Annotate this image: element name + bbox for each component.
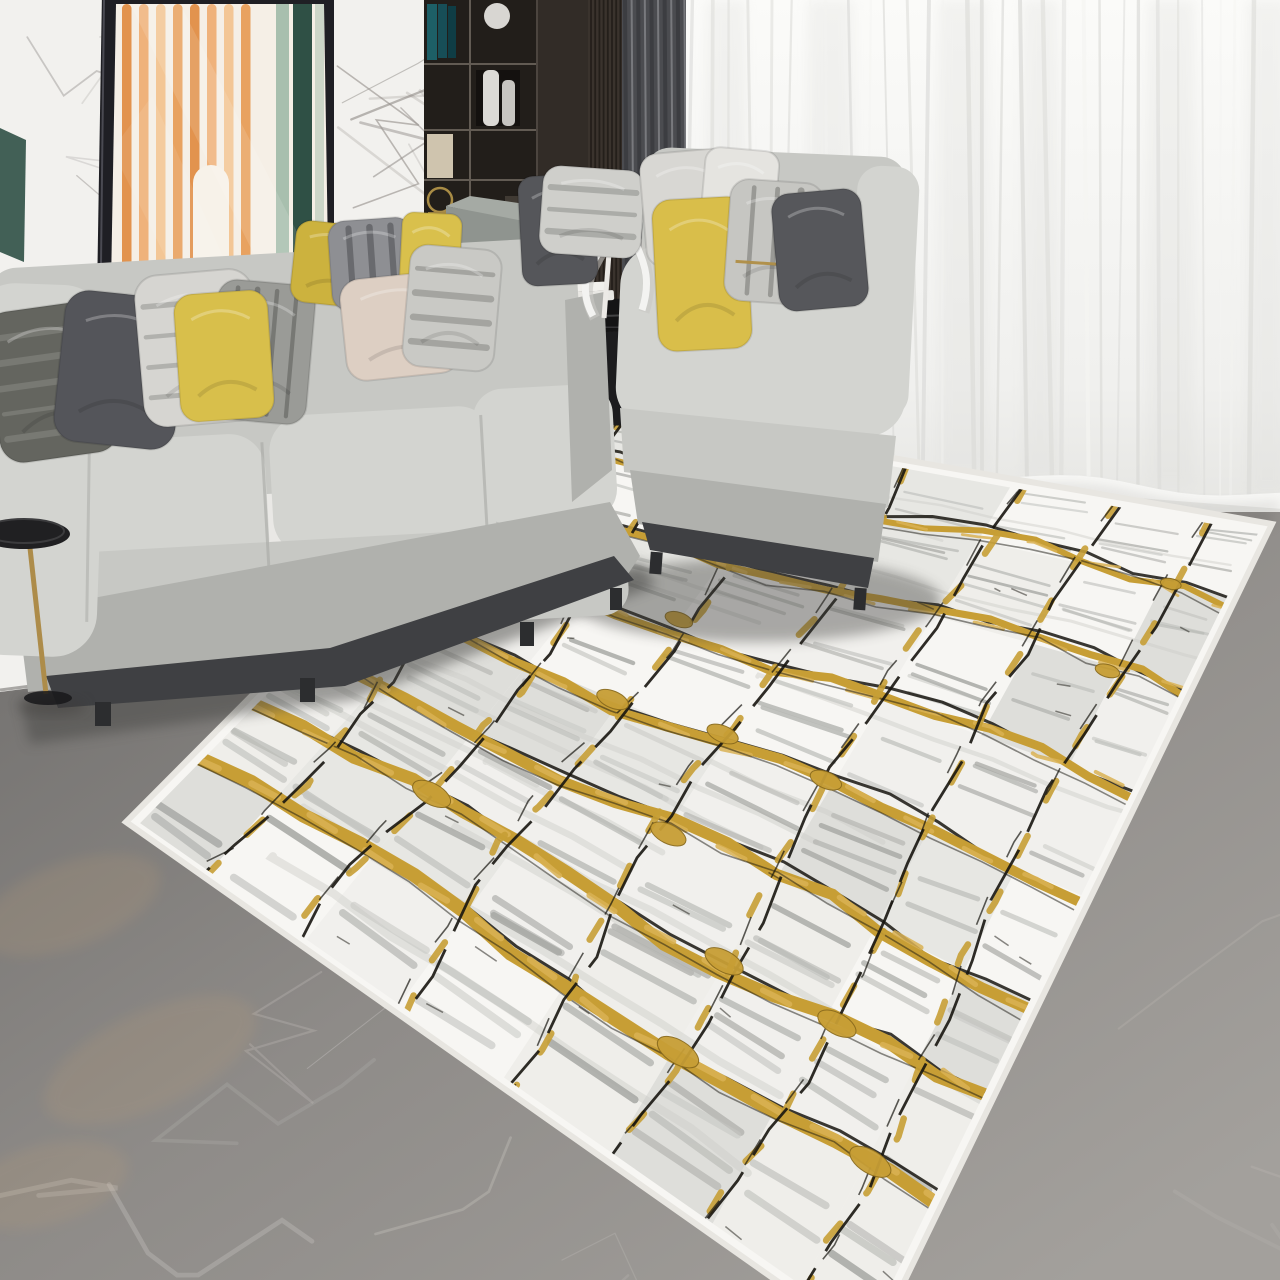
teal-book (438, 4, 447, 58)
pillow-body (173, 289, 276, 423)
sofa-leg (610, 588, 622, 610)
sheer-pleat (1061, 0, 1064, 475)
chaise-leg (649, 552, 663, 575)
pillow-body (401, 243, 503, 373)
sheer-pleat (1158, 0, 1160, 489)
table-foot (24, 691, 72, 705)
living-room-photo: Modern living room photo: light gray L-s… (0, 0, 1280, 1280)
teal-book (448, 6, 456, 58)
sphere-vase (484, 3, 510, 29)
pillow (401, 243, 503, 373)
sheer-pleat (1138, 0, 1139, 485)
rug-tick-mark (567, 638, 574, 639)
pillow (173, 289, 276, 423)
sofa-leg (300, 678, 315, 702)
chaise-leg (853, 588, 867, 611)
pillow (538, 165, 646, 260)
sofa-leg (520, 622, 534, 646)
sofa-end-side (565, 292, 612, 502)
white-vase (502, 80, 515, 126)
beige-box (427, 134, 453, 178)
white-vase (483, 70, 499, 126)
pillow (770, 187, 870, 312)
sheer-shade-band (1148, 0, 1195, 487)
green-decor-sliver (0, 128, 26, 262)
pillow-body (770, 187, 870, 312)
living-room-scene (0, 0, 1280, 1280)
sofa-leg (95, 702, 111, 726)
sheer-pleat (1220, 0, 1221, 496)
teal-book (427, 4, 437, 60)
